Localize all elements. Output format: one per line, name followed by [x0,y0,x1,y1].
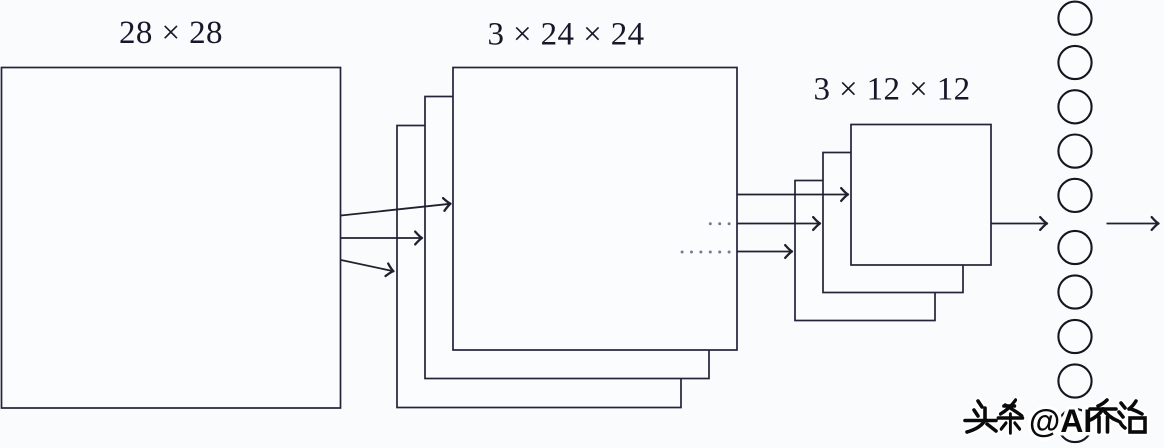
svg-text:3 × 12 × 12: 3 × 12 × 12 [813,72,970,108]
svg-text:28 × 28: 28 × 28 [119,15,223,51]
svg-text:@AI: @AI [1029,403,1092,439]
svg-text:3 × 24 × 24: 3 × 24 × 24 [487,17,644,53]
